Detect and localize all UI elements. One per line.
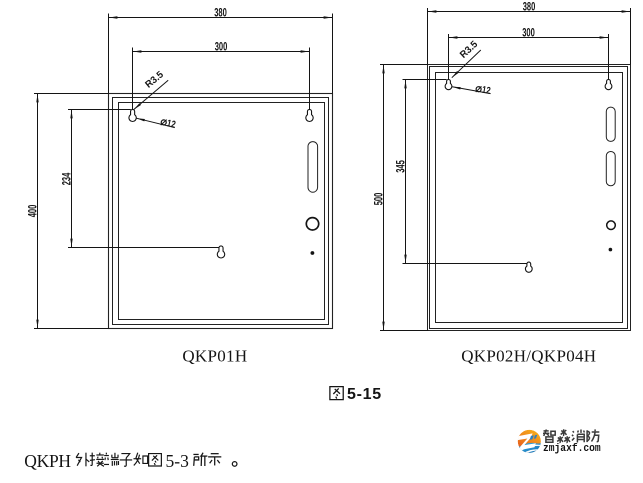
svg-text:300: 300	[215, 41, 228, 53]
svg-text:300: 300	[522, 27, 535, 39]
svg-text:5-15: 5-15	[347, 386, 382, 403]
svg-text:380: 380	[523, 2, 536, 14]
svg-text:380: 380	[214, 8, 227, 20]
svg-text:zmjaxf.com: zmjaxf.com	[543, 443, 601, 455]
svg-text:400: 400	[27, 205, 39, 218]
svg-text:QKP02H/QKP04H: QKP02H/QKP04H	[461, 347, 596, 366]
svg-text:QKPH: QKPH	[24, 451, 71, 471]
svg-text:234: 234	[61, 172, 73, 185]
svg-text:500: 500	[373, 193, 385, 206]
svg-text:345: 345	[396, 160, 408, 173]
svg-text:5-3: 5-3	[166, 451, 190, 471]
svg-text:QKP01H: QKP01H	[182, 347, 247, 366]
